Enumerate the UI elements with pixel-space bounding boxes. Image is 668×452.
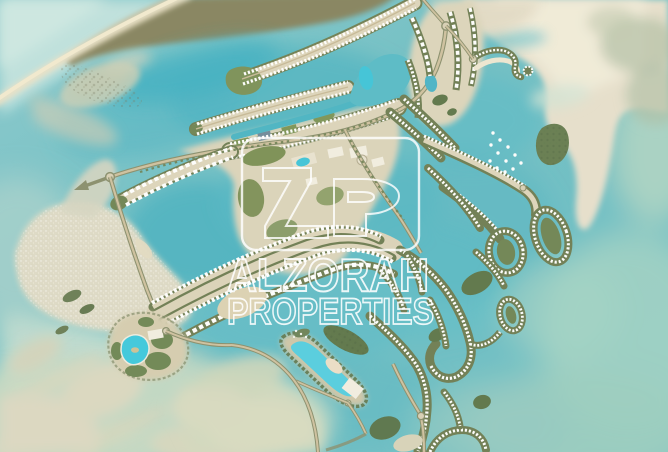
svg-text:PROPERTIES: PROPERTIES [227,291,434,332]
